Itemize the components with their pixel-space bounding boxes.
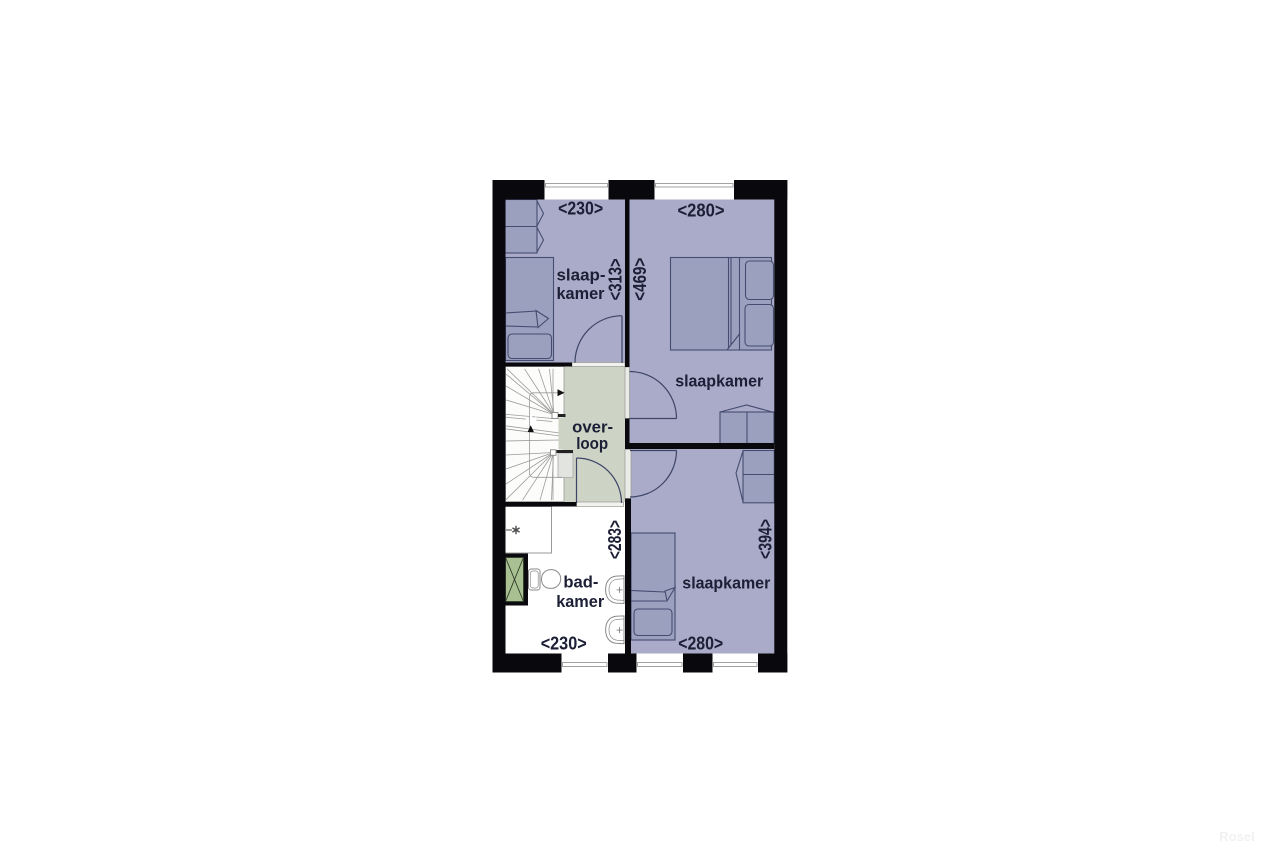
svg-text:<313>: <313> [605, 258, 625, 300]
svg-text:slaapkamer: slaapkamer [675, 372, 763, 391]
svg-text:<230>: <230> [558, 199, 603, 219]
svg-text:kamer: kamer [557, 284, 605, 303]
svg-text:kamer: kamer [556, 592, 604, 611]
svg-text:Rosel: Rosel [1219, 829, 1254, 844]
svg-text:<394>: <394> [755, 519, 775, 559]
svg-text:<280>: <280> [678, 201, 725, 221]
svg-text:<230>: <230> [541, 634, 587, 654]
svg-text:<280>: <280> [678, 634, 723, 654]
svg-text:<469>: <469> [630, 258, 650, 301]
svg-text:slaap-: slaap- [557, 265, 606, 284]
svg-text:loop: loop [576, 434, 608, 453]
svg-text:<283>: <283> [605, 520, 625, 559]
svg-text:bad-: bad- [563, 573, 598, 592]
svg-text:slaapkamer: slaapkamer [682, 574, 770, 593]
